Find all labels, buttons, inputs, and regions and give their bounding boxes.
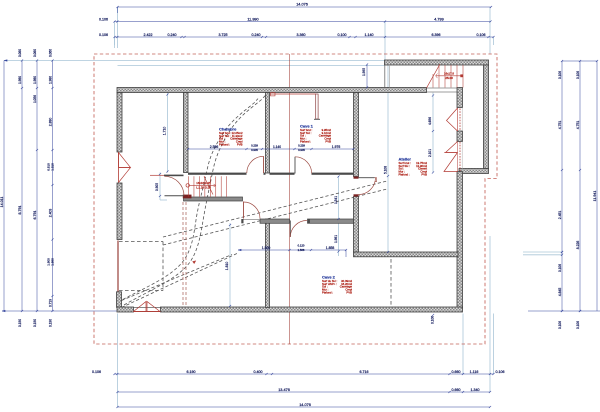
svg-text:L:1.20 G:25: L:1.20 G:25 (196, 186, 211, 190)
svg-text:2.596: 2.596 (210, 145, 219, 149)
svg-text:2.890: 2.890 (48, 118, 52, 127)
svg-text:11.990: 11.990 (247, 17, 258, 21)
svg-text:1.976: 1.976 (332, 145, 341, 149)
svg-text:0.190: 0.190 (18, 319, 22, 327)
svg-text:1.710: 1.710 (163, 127, 167, 136)
svg-text:6.716: 6.716 (360, 370, 369, 374)
svg-text:0.100: 0.100 (338, 33, 347, 37)
svg-text:1.980: 1.980 (18, 76, 22, 84)
svg-text:0.106: 0.106 (99, 17, 108, 21)
svg-text:Plafond :: Plafond : (399, 173, 410, 177)
svg-text:PVB: PVB (421, 173, 427, 177)
svg-text:1.541: 1.541 (334, 196, 338, 204)
svg-text:0.660: 0.660 (452, 370, 461, 374)
svg-text:0.060: 0.060 (33, 49, 37, 57)
svg-text:11.941: 11.941 (593, 191, 597, 202)
svg-text:6.190: 6.190 (187, 370, 196, 374)
svg-text:1.140: 1.140 (273, 145, 281, 149)
svg-text:PVB: PVB (346, 291, 352, 295)
svg-text:2.451: 2.451 (558, 211, 562, 220)
svg-text:0.239: 0.239 (251, 143, 258, 147)
svg-text:4.696: 4.696 (428, 117, 432, 125)
svg-text:1.116: 1.116 (470, 370, 479, 374)
svg-text:0.400: 0.400 (254, 370, 263, 374)
svg-text:0.106: 0.106 (576, 71, 580, 79)
svg-text:0.905: 0.905 (298, 148, 305, 152)
svg-text:13.476: 13.476 (278, 388, 290, 392)
svg-text:0.106: 0.106 (431, 316, 435, 324)
svg-text:14.011: 14.011 (0, 197, 4, 208)
svg-text:0.060: 0.060 (48, 49, 52, 57)
svg-text:0.905: 0.905 (251, 148, 258, 152)
svg-text:0.106: 0.106 (558, 264, 562, 272)
svg-text:2.403: 2.403 (48, 209, 52, 218)
svg-text:1.056: 1.056 (33, 95, 37, 103)
svg-text:Plafond :: Plafond : (300, 140, 311, 144)
svg-text:14.076: 14.076 (296, 3, 308, 7)
svg-text:8.791: 8.791 (18, 206, 22, 215)
svg-text:0.240: 0.240 (168, 33, 177, 37)
svg-text:1.980: 1.980 (33, 76, 37, 84)
svg-text:2.422: 2.422 (144, 33, 153, 37)
svg-text:1.588: 1.588 (298, 248, 305, 252)
svg-text:0.239: 0.239 (298, 143, 305, 147)
svg-text:1.810: 1.810 (225, 262, 229, 271)
svg-text:4.799: 4.799 (434, 17, 444, 21)
svg-text:0.660: 0.660 (452, 388, 461, 392)
svg-text:0.905: 0.905 (155, 183, 159, 191)
svg-text:16x17.8: 16x17.8 (444, 72, 454, 76)
svg-text:2.101: 2.101 (428, 149, 432, 157)
svg-text:4.845: 4.845 (558, 288, 562, 297)
svg-text:1.500: 1.500 (262, 246, 271, 250)
svg-text:0.106: 0.106 (92, 370, 101, 374)
svg-text:1.990: 1.990 (51, 258, 55, 266)
svg-text:3.360: 3.360 (297, 33, 306, 37)
svg-text:1.981: 1.981 (334, 235, 338, 243)
svg-text:0.190: 0.190 (33, 319, 37, 327)
svg-text:1.340: 1.340 (471, 388, 480, 392)
svg-text:0.240: 0.240 (252, 33, 261, 37)
svg-text:0.106: 0.106 (99, 33, 108, 37)
svg-text:0.106: 0.106 (496, 370, 505, 374)
svg-text:0.120: 0.120 (298, 244, 305, 248)
svg-text:14.076: 14.076 (299, 403, 311, 407)
svg-text:1.995: 1.995 (362, 68, 366, 76)
svg-text:Plafond :: Plafond : (322, 291, 333, 295)
svg-text:4.751: 4.751 (558, 121, 562, 130)
svg-text:1.310: 1.310 (51, 163, 55, 171)
svg-text:25x18: 25x18 (445, 76, 453, 80)
svg-text:1.980: 1.980 (48, 76, 52, 84)
svg-text:0.106: 0.106 (558, 321, 562, 329)
svg-text:PVB: PVB (325, 140, 331, 144)
svg-text:Plafond :: Plafond : (219, 143, 230, 147)
svg-text:4.751: 4.751 (576, 121, 580, 130)
svg-text:0.106: 0.106 (477, 33, 486, 37)
svg-text:0.060: 0.060 (18, 49, 22, 57)
svg-text:6.396: 6.396 (432, 33, 441, 37)
svg-text:16x18.1x25: 16x18.1x25 (196, 181, 211, 185)
svg-text:0.190: 0.190 (48, 319, 52, 327)
svg-text:0.719: 0.719 (48, 299, 52, 307)
svg-text:6.791: 6.791 (33, 211, 37, 220)
svg-text:0.106: 0.106 (576, 321, 580, 329)
svg-text:5.108: 5.108 (383, 166, 387, 174)
svg-text:PVB: PVB (237, 143, 243, 147)
svg-text:3.725: 3.725 (219, 33, 228, 37)
svg-text:1.858: 1.858 (326, 246, 335, 250)
svg-text:1.140: 1.140 (365, 33, 374, 37)
svg-text:8.226: 8.226 (576, 241, 580, 250)
svg-text:0.106: 0.106 (558, 71, 562, 79)
